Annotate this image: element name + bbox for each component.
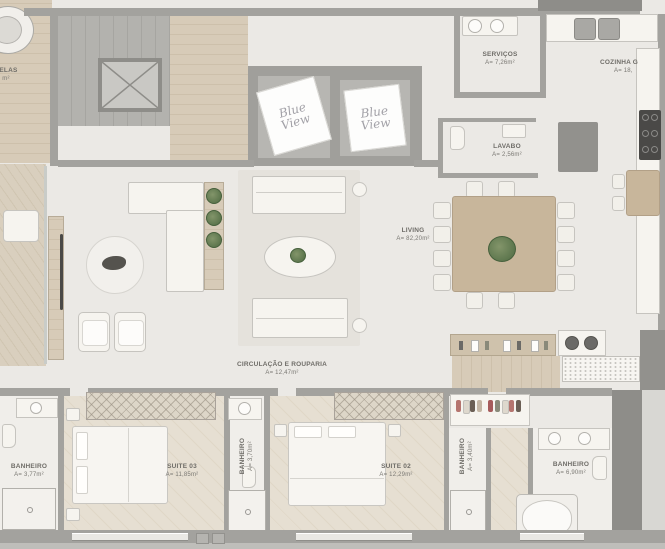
pillow [76,466,88,494]
dining-chair [557,226,575,243]
wardrobe [334,392,444,420]
cooktop [639,110,661,160]
nightstand [388,424,401,437]
centerpiece-plant-icon [488,236,516,262]
lobby-floor [170,16,248,164]
table-plant-icon [290,248,306,263]
room-area: A= 7,26m² [458,59,542,68]
room-area: A= 3,70m² [247,438,256,474]
wall [414,160,438,167]
loveseat-seam [256,318,344,319]
service-block [640,330,665,392]
sink [548,432,561,445]
nightstand [66,408,80,421]
brand-logo-text: Blue View [359,104,392,131]
sink [238,402,251,415]
wine-rack [562,356,640,382]
armchair-seat [82,320,108,346]
shower [450,490,486,532]
room-label-banheiro-3: BANHEIRO A= 3,40m² [438,426,496,486]
room-label-circulacao: CIRCULAÇÃO E ROUPARIA A= 12,47m² [226,360,338,378]
side-table [352,182,367,197]
wall [0,388,70,396]
washer-icon [468,19,482,33]
shaft-x-icon [102,62,158,108]
room-name: BANHEIRO [532,460,610,469]
glass-wall [44,166,47,364]
ac-unit [196,533,209,544]
pillow [328,426,356,438]
floor-plan: DELAS m² Blue View Blue View SERVIÇOS A=… [0,0,665,549]
balcony-edge [0,543,665,549]
toilet [2,424,16,448]
wall [612,390,642,549]
room-label-lavabo: LAVABO A= 2,56m² [474,142,540,160]
balcony-lounge [3,210,39,242]
room-label-cozinha: COZINHA G A= 18, [600,58,665,76]
lavabo-sink [502,124,526,138]
room-area: m² [0,75,26,84]
pillow [294,426,322,438]
kitchen-chair [612,174,625,189]
bar-sink [565,336,579,350]
kitchen-chair [612,196,625,211]
room-label-living: LIVING A= 82,20m² [378,226,448,244]
dining-chair [433,202,451,219]
tv-panel [60,234,63,310]
sectional-sofa-chaise [166,210,204,292]
room-name: BANHEIRO [0,462,58,471]
room-name: SUITE 02 [350,462,442,471]
wardrobe [86,392,216,420]
dining-chair [433,250,451,267]
window [296,533,412,541]
wall [538,0,642,11]
loveseat [252,176,346,214]
wall [438,118,443,178]
shower [2,488,56,530]
wall [50,8,58,166]
side-table [352,318,367,333]
console-plant-icon [206,232,222,248]
room-name: BANHEIRO [238,438,247,474]
edge-strip [642,390,665,549]
room-label-banheiro-1: BANHEIRO A= 3,77m² [0,462,58,480]
nightstand [66,508,80,521]
room-name: SUITE 03 [138,462,226,471]
room-name: CIRCULAÇÃO E ROUPARIA [226,360,338,369]
dryer-icon [490,19,504,33]
room-label-partial: DELAS m² [0,66,26,84]
window [72,533,188,541]
wall [454,92,546,98]
ac-unit [212,533,225,544]
room-area: A= 11,85m² [138,471,226,480]
room-name: DELAS [0,66,26,75]
console-plant-icon [206,188,222,204]
kitchen-island [558,122,598,172]
room-name: BANHEIRO [458,438,467,474]
armchair-seat [118,320,144,346]
room-area: A= 12,47m² [226,369,338,378]
room-label-banheiro-4: BANHEIRO A= 6,90m² [532,460,610,478]
window [520,533,584,541]
room-area: A= 82,20m² [378,235,448,244]
dining-chair [498,292,515,309]
sink [30,402,42,414]
room-label-suite-02: SUITE 02 A= 12,29m² [350,462,442,480]
hallway-floor [452,356,560,392]
room-label-servicos: SERVIÇOS A= 7,26m² [458,50,542,68]
bar-sink [584,336,598,350]
bar-sideboard [450,334,556,356]
shaft-box [98,58,162,112]
room-area: A= 12,29m² [350,471,442,480]
room-area: A= 3,77m² [0,471,58,480]
kitchen-table [626,170,660,216]
room-label-banheiro-2: BANHEIRO A= 3,70m² [218,426,276,486]
console-plant-icon [206,210,222,226]
sink [578,432,591,445]
room-area: A= 18, [600,67,665,76]
loveseat-seam [256,192,342,193]
dining-chair [557,202,575,219]
brand-logo-text: Blue View [276,100,311,131]
shower [228,490,266,532]
kitchen-sink [574,18,596,40]
blanket-fold [128,428,129,502]
room-name: LIVING [378,226,448,235]
room-area: A= 6,90m² [532,469,610,478]
pillow [76,432,88,460]
kitchen-sink [598,18,620,40]
nightstand [274,424,287,437]
wall [438,118,536,122]
dining-chair [466,292,483,309]
elevator-logo-panel: Blue View [343,84,406,152]
room-name: COZINHA G [600,58,665,67]
balcony-deck [0,164,46,366]
dining-chair [557,250,575,267]
room-name: SERVIÇOS [458,50,542,59]
dining-chair [557,274,575,291]
wall [438,173,538,178]
wall [58,160,254,167]
toilet [450,126,465,150]
dining-chair [433,274,451,291]
room-label-suite-03: SUITE 03 A= 11,85m² [138,462,226,480]
room-name: LAVABO [474,142,540,151]
room-area: A= 3,40m² [467,438,476,474]
room-area: A= 2,56m² [474,151,540,160]
